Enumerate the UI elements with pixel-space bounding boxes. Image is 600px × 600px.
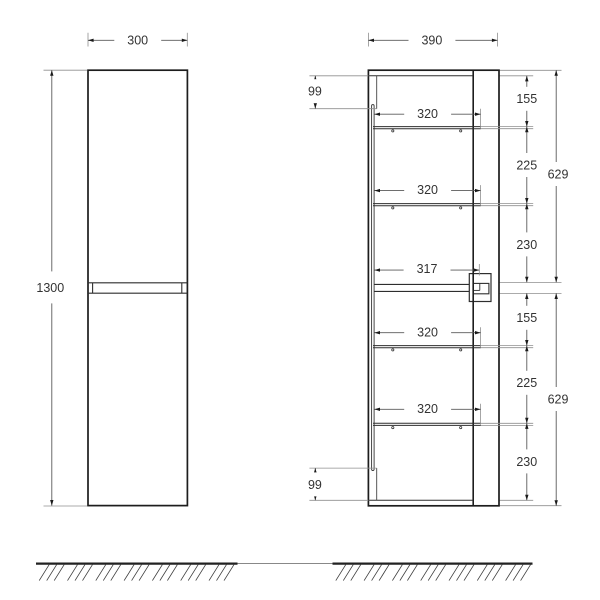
svg-text:225: 225 bbox=[516, 376, 537, 390]
svg-text:320: 320 bbox=[417, 107, 438, 121]
svg-text:320: 320 bbox=[417, 402, 438, 416]
svg-text:230: 230 bbox=[516, 455, 537, 469]
svg-text:99: 99 bbox=[308, 85, 322, 99]
svg-text:390: 390 bbox=[421, 33, 442, 47]
svg-text:320: 320 bbox=[417, 325, 438, 339]
svg-text:99: 99 bbox=[308, 478, 322, 492]
svg-text:225: 225 bbox=[516, 158, 537, 172]
svg-text:629: 629 bbox=[548, 392, 569, 406]
svg-text:300: 300 bbox=[127, 33, 148, 47]
svg-text:317: 317 bbox=[417, 262, 438, 276]
svg-text:1300: 1300 bbox=[36, 281, 64, 295]
svg-text:629: 629 bbox=[548, 167, 569, 181]
svg-text:155: 155 bbox=[516, 92, 537, 106]
svg-text:230: 230 bbox=[516, 238, 537, 252]
svg-text:320: 320 bbox=[417, 183, 438, 197]
svg-text:155: 155 bbox=[516, 311, 537, 325]
